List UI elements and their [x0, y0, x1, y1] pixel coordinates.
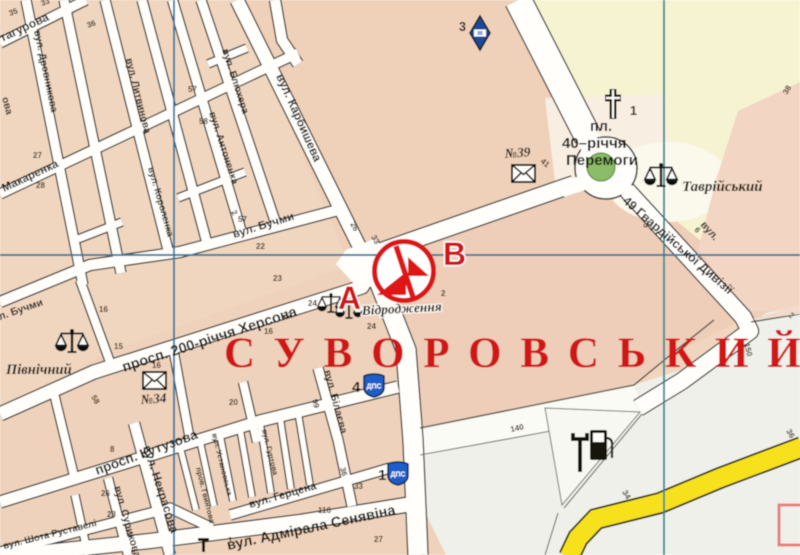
svg-text:1: 1 — [228, 536, 233, 545]
svg-text:57: 57 — [188, 85, 197, 94]
svg-text:1: 1 — [378, 467, 386, 484]
svg-text:№34: №34 — [139, 390, 167, 407]
svg-text:22: 22 — [283, 311, 292, 320]
svg-text:24: 24 — [367, 322, 376, 331]
svg-text:16: 16 — [264, 327, 273, 336]
svg-text:СУВОРОВСЬКИЙ: СУВОРОВСЬКИЙ — [224, 330, 800, 377]
svg-text:27: 27 — [33, 151, 42, 160]
svg-text:4: 4 — [352, 379, 361, 396]
svg-text:№39: №39 — [503, 144, 531, 161]
svg-text:57: 57 — [238, 215, 247, 224]
svg-text:23: 23 — [107, 510, 116, 519]
svg-text:22: 22 — [256, 242, 265, 251]
svg-text:2: 2 — [441, 289, 446, 298]
svg-text:58: 58 — [199, 117, 208, 126]
svg-text:27: 27 — [374, 535, 383, 544]
svg-text:ДПС: ДПС — [366, 384, 381, 391]
svg-text:23: 23 — [273, 274, 282, 283]
svg-text:16: 16 — [152, 361, 161, 370]
svg-text:3: 3 — [459, 20, 466, 34]
svg-text:20: 20 — [229, 398, 238, 407]
svg-text:А: А — [338, 280, 361, 316]
svg-text:ДПС: ДПС — [390, 472, 405, 479]
svg-text:40–річчя: 40–річчя — [562, 135, 627, 152]
svg-text:28: 28 — [36, 181, 45, 190]
svg-text:Північний: Північний — [5, 362, 72, 378]
svg-text:1: 1 — [630, 104, 637, 118]
svg-text:8: 8 — [110, 445, 115, 454]
svg-text:16: 16 — [99, 305, 108, 314]
svg-text:26: 26 — [101, 489, 110, 498]
svg-text:15: 15 — [114, 342, 123, 351]
svg-text:Перемоги: Перемоги — [566, 152, 638, 169]
svg-text:Таврійський: Таврійський — [682, 179, 763, 195]
svg-text:116: 116 — [318, 506, 331, 515]
svg-text:33: 33 — [354, 482, 363, 491]
svg-text:24: 24 — [308, 299, 317, 308]
svg-text:В: В — [443, 236, 466, 272]
svg-text:пл.: пл. — [590, 119, 612, 135]
